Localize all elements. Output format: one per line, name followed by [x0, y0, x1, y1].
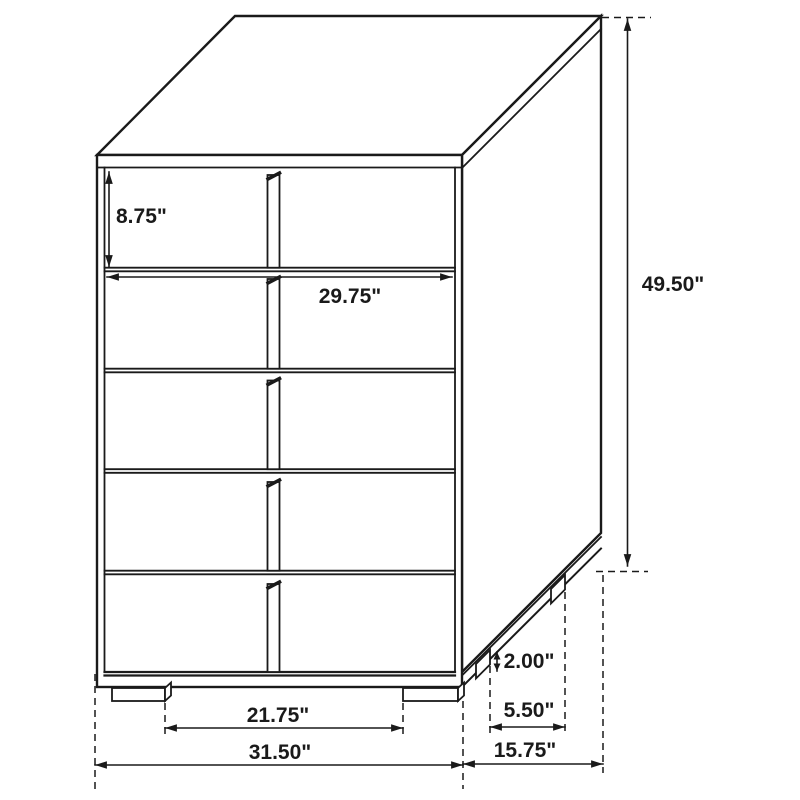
- drawer-handles: [268, 173, 280, 672]
- front-left-foot: [112, 688, 165, 701]
- dimension-overall-height: 49.50": [628, 19, 705, 566]
- dimension-diagram: 8.75" 29.75" 49.50" 2.00" 5.50" 21.75" 3…: [0, 0, 800, 800]
- drawer-handle: [268, 584, 280, 672]
- dimension-label-top-drawer-height: 8.75": [116, 205, 167, 228]
- dimension-overall-depth: 15.75": [463, 739, 603, 764]
- dimension-label-drawer-width: 29.75": [319, 285, 382, 308]
- dimension-foot-depth: 5.50": [490, 699, 565, 727]
- dimension-front-feet-spacing: 21.75": [165, 704, 403, 728]
- drawer-handle: [268, 175, 280, 268]
- drawer-handle: [268, 482, 280, 571]
- dimension-label-front-feet-spacing: 21.75": [247, 704, 310, 727]
- dimension-label-overall-height: 49.50": [642, 273, 705, 296]
- dimension-label-overall-width: 31.50": [249, 741, 312, 764]
- drawer-handle: [268, 279, 280, 369]
- dimension-label-overall-depth: 15.75": [494, 739, 557, 762]
- dimension-label-foot-height: 2.00": [504, 650, 555, 673]
- drawer-handle: [268, 381, 280, 470]
- chest-dimension-drawing: 8.75" 29.75" 49.50" 2.00" 5.50" 21.75" 3…: [0, 0, 800, 800]
- front-right-foot: [403, 688, 458, 701]
- dimension-foot-height: 2.00": [497, 650, 554, 673]
- dimension-label-foot-depth: 5.50": [504, 699, 555, 722]
- dimension-overall-width: 31.50": [95, 741, 463, 765]
